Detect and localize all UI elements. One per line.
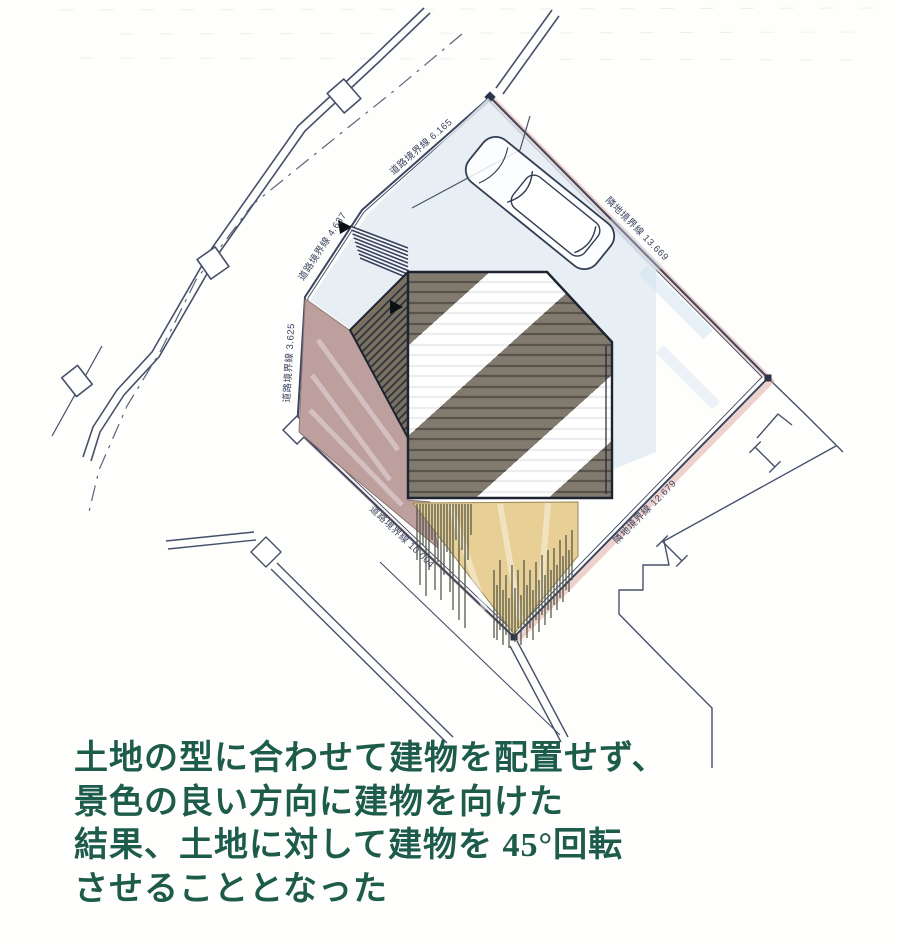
caption-text-block: 土地の型に合わせて建物を配置せず、 景色の良い方向に建物を向けた 結果、土地に対…	[74, 737, 714, 911]
label-neighbor-12679: 隣地境界線 12.679	[611, 477, 679, 546]
neighbor-stepped-line	[619, 446, 836, 768]
label-road-3625: 道路境界線 3.625	[281, 323, 298, 403]
scanned-site-plan-page: 道路境界線 6.165 道路境界線 4.637 道路境界線 3.625 道路境界…	[0, 0, 900, 949]
wood-deck	[413, 502, 578, 648]
road-right-edge-extension	[496, 10, 559, 94]
scan-texture	[60, 8, 890, 60]
road-below-bottom-corner	[510, 641, 568, 742]
corner-marker-east	[765, 375, 772, 382]
caption-line-4: させることとなった	[74, 868, 714, 912]
caption-line-2: 景色の良い方向に建物を向けた	[74, 781, 714, 825]
survey-marker-icon	[656, 441, 780, 566]
neighbor-notch	[757, 414, 792, 438]
road-diamond-marker	[251, 537, 281, 567]
caption-line-3: 結果、土地に対して建物を 45°回転	[74, 824, 714, 868]
caption-line-1: 土地の型に合わせて建物を配置せず、	[74, 737, 714, 781]
